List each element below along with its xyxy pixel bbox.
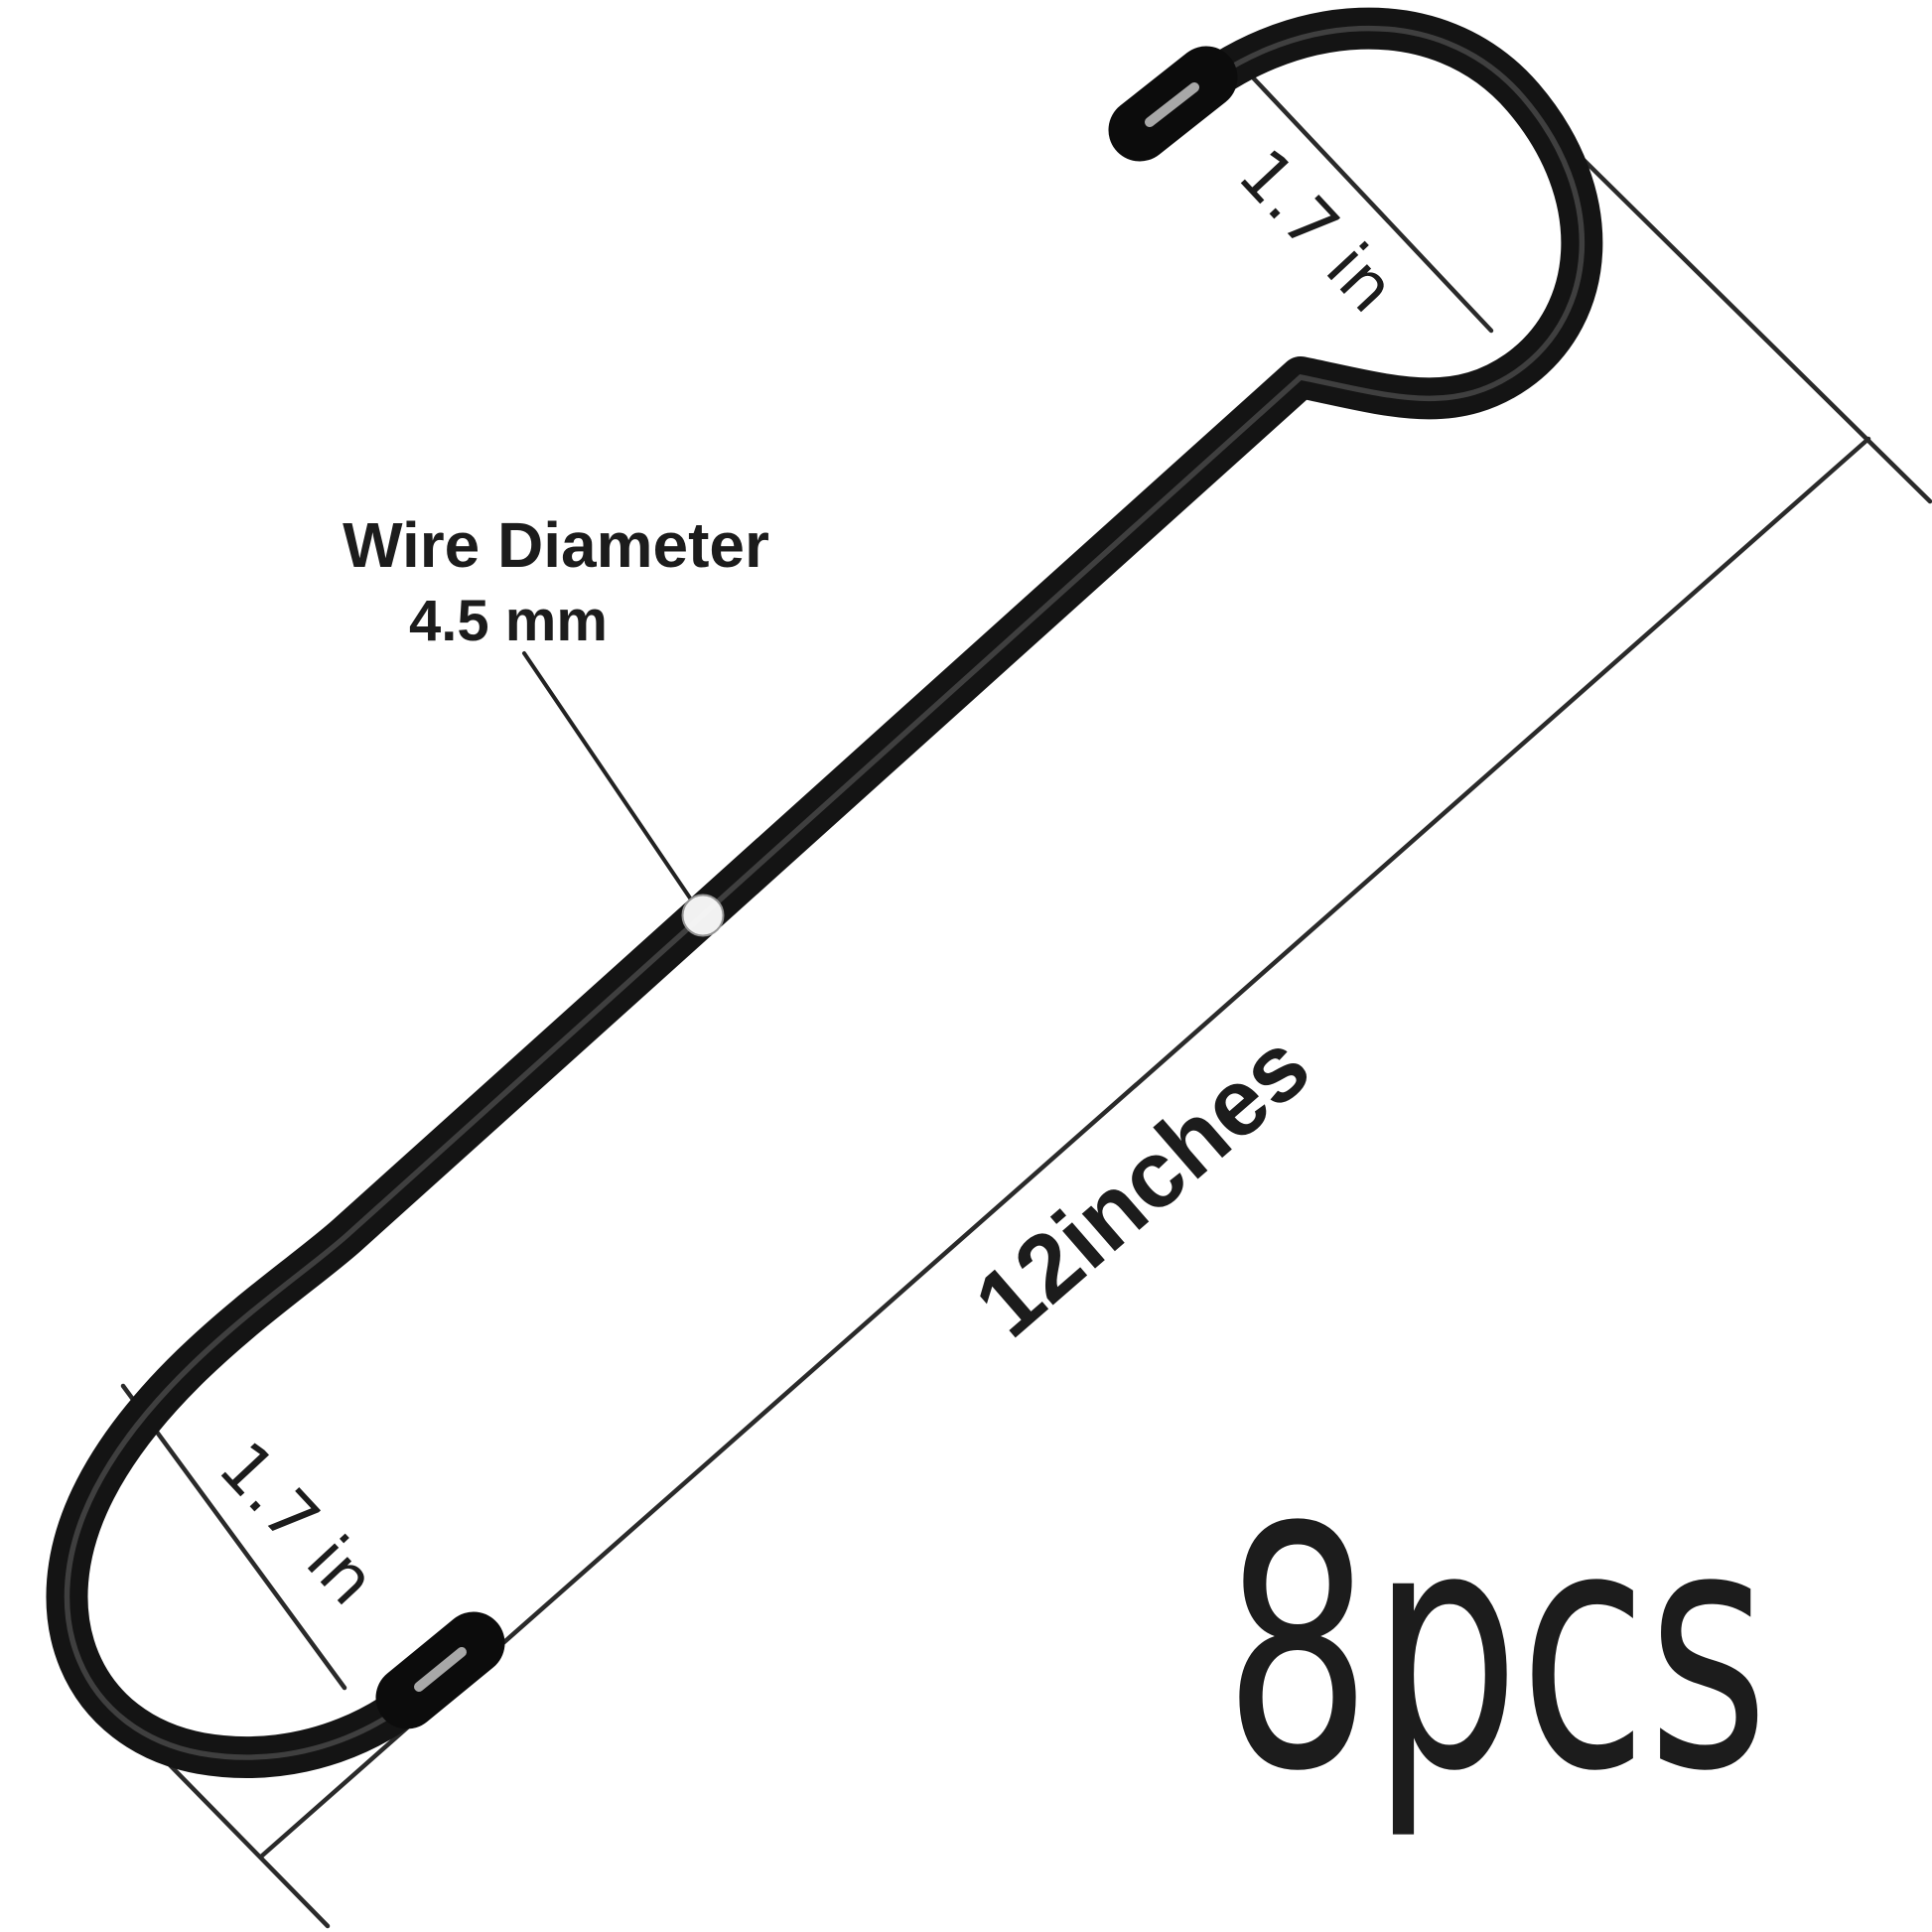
wire-cross-section-dot: [683, 896, 724, 936]
diagram-canvas: Wire Diameter 4.5 mm 1.7 in 1.7 in 12inc…: [0, 0, 1932, 1932]
product-dimension-diagram: Wire Diameter 4.5 mm 1.7 in 1.7 in 12inc…: [0, 0, 1932, 1932]
quantity-label: 8pcs: [1223, 1458, 1768, 1845]
wire-diameter-value: 4.5 mm: [409, 589, 608, 653]
wire-diameter-label: Wire Diameter: [343, 509, 769, 581]
